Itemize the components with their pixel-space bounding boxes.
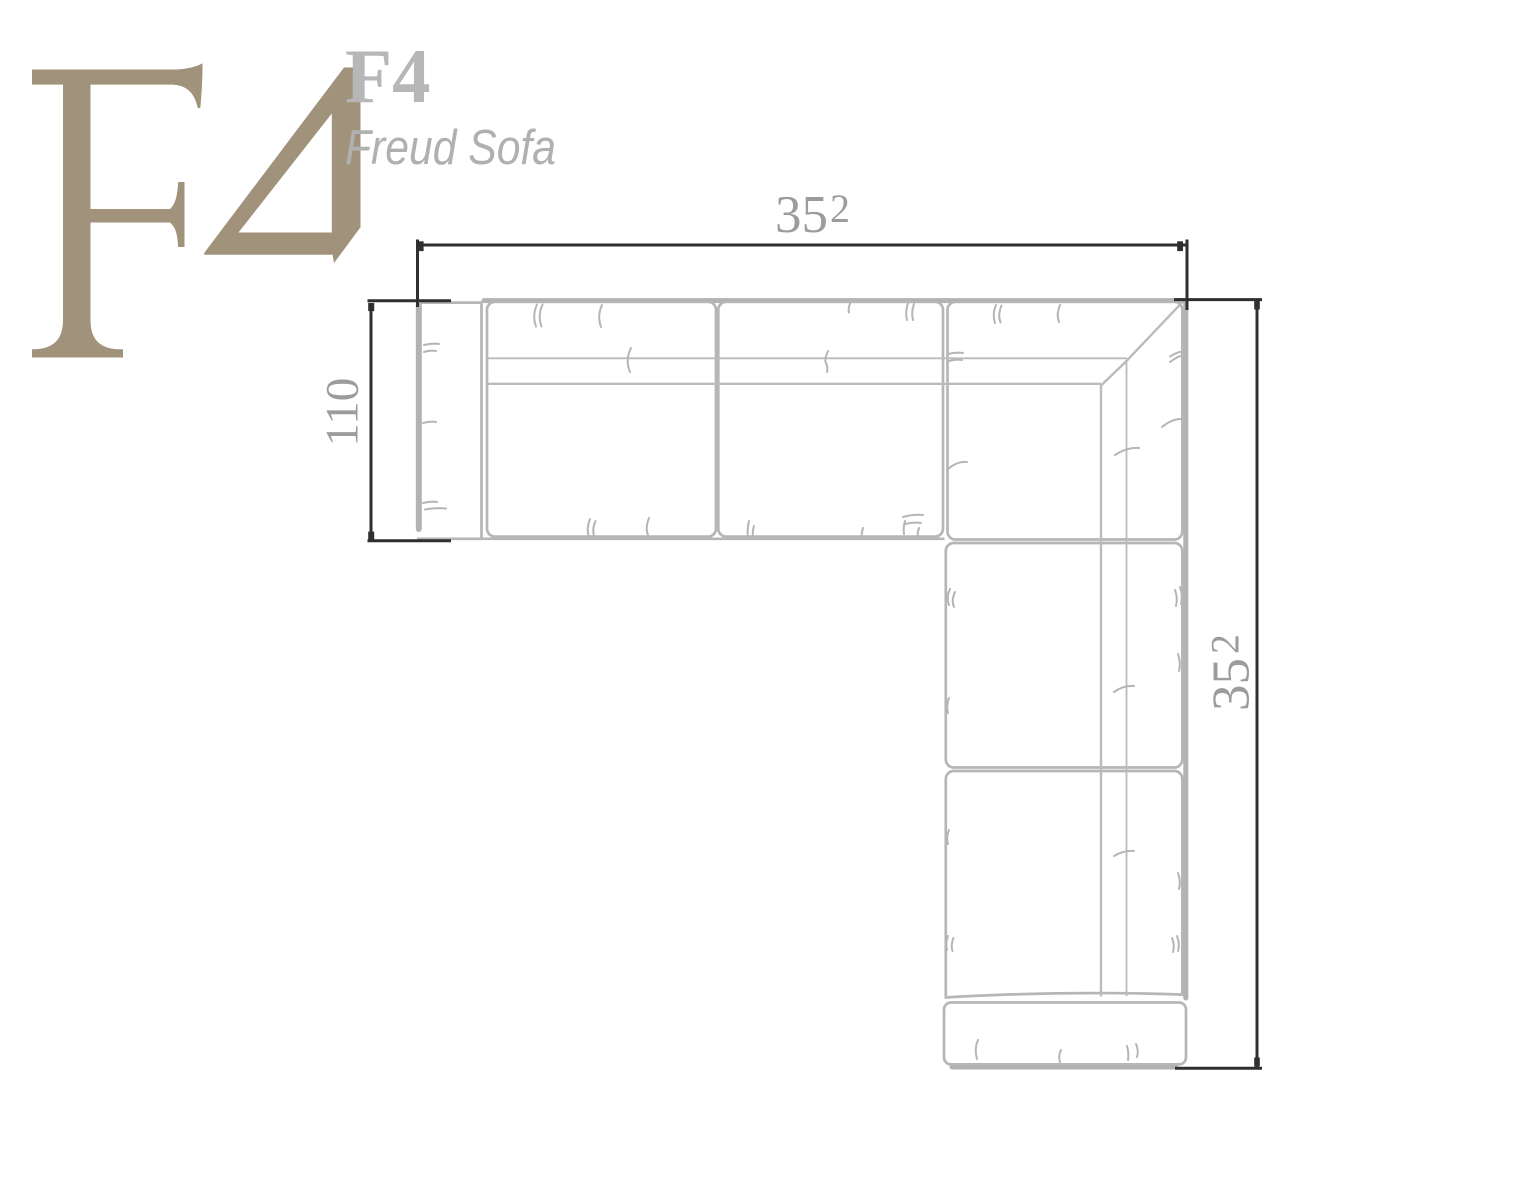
svg-text:F4: F4	[345, 33, 431, 119]
svg-text:35: 35	[775, 186, 828, 244]
svg-text:2: 2	[1203, 634, 1248, 654]
svg-text:110: 110	[317, 378, 369, 447]
svg-text:35: 35	[1203, 658, 1261, 711]
svg-text:Freud Sofa: Freud Sofa	[345, 121, 556, 175]
svg-text:2: 2	[830, 186, 850, 231]
